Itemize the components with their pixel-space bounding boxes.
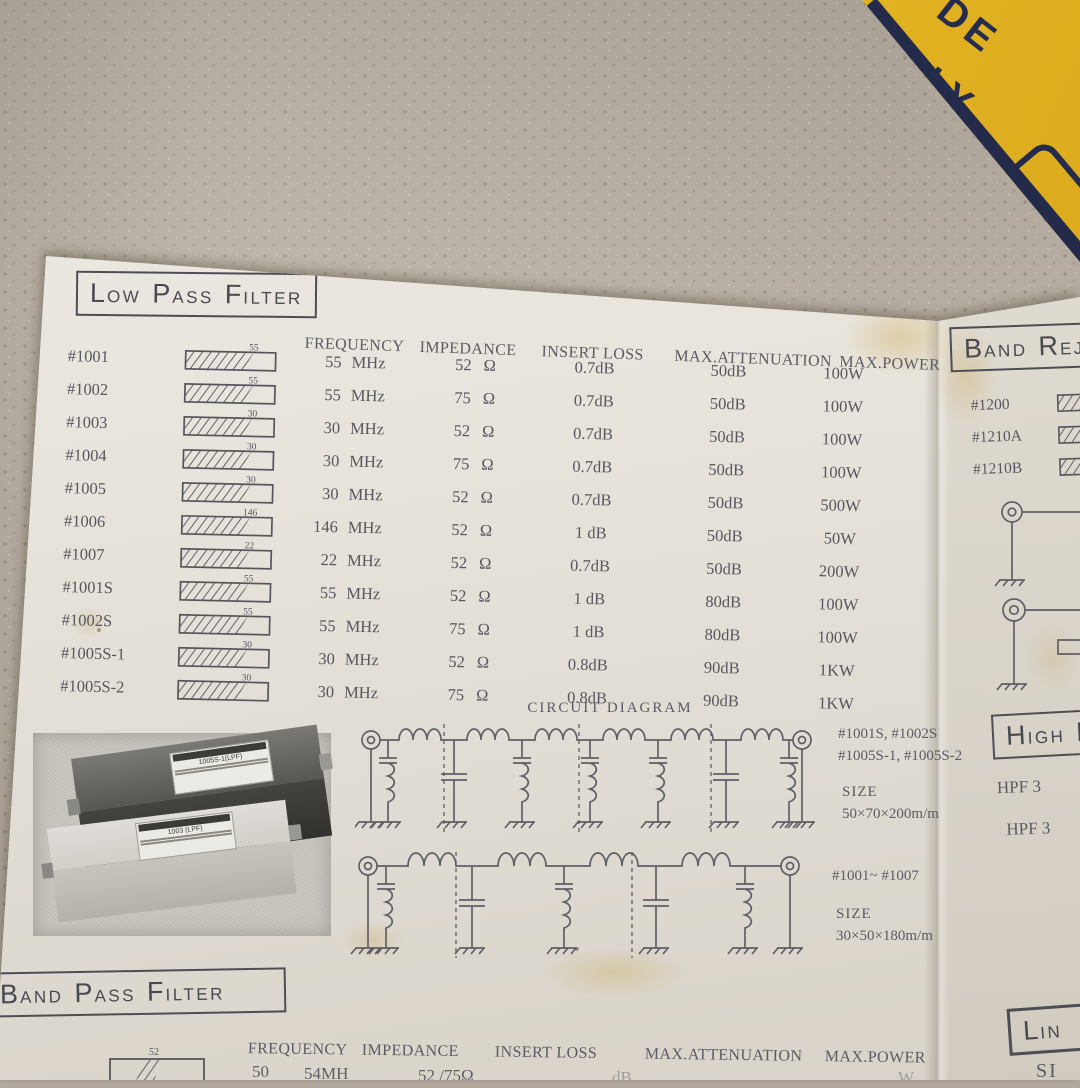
model-number: #1005 — [64, 478, 106, 499]
title-word: LIN — [1022, 1013, 1063, 1047]
band-pass-power-fragment: W — [898, 1068, 914, 1088]
frequency-unit: MHz — [351, 353, 385, 374]
column-header: MAX.ATTENUATION — [645, 1046, 803, 1066]
band-reject-filter-title: BANDREJE — [949, 321, 1080, 373]
insert-loss: 0.7dB — [545, 357, 643, 379]
impedance-unit: Ω — [483, 356, 496, 376]
max-attenuation: 50dB — [682, 492, 768, 514]
title-word: P — [1075, 716, 1080, 748]
frequency-unit: MHz — [345, 650, 379, 671]
circuit-top-models-2: #1005S-1, #1005S-2 — [838, 748, 962, 765]
impedance-unit: Ω — [482, 422, 495, 442]
max-power: 100W — [797, 462, 885, 484]
title-word: REJE — [1038, 329, 1080, 362]
column-header: MAX.POWER — [825, 1048, 926, 1067]
impedance-value: 52 — [430, 486, 468, 507]
column-header: FREQUENCY — [248, 1040, 348, 1059]
frequency-value: 55 — [291, 351, 341, 372]
model-number: #1003 — [66, 412, 108, 433]
frequency-value: 55 — [291, 384, 341, 405]
max-attenuation: 50dB — [684, 426, 770, 448]
band-reject-item: #1200 — [970, 386, 1080, 422]
max-attenuation: 50dB — [685, 360, 771, 382]
catalog-page: LOWPASSFILTER FREQUENCYIMPEDANCEINSERT L… — [0, 0, 1080, 1080]
max-power: 100W — [794, 594, 882, 616]
max-attenuation: 50dB — [681, 558, 767, 580]
band-pass-response-symbol: 52 — [108, 1046, 208, 1082]
band-pass-impedance: 52 /75Ω — [418, 1066, 474, 1086]
circuit-top-size-label: SIZE — [842, 784, 878, 801]
lpf-response-symbol: 30 — [180, 473, 275, 505]
frequency-unit: MHz — [351, 386, 385, 407]
frequency-unit: MHz — [349, 452, 383, 473]
circuit-top-size: 50×70×200m/m — [842, 806, 939, 823]
model-number: #1200 — [971, 394, 1058, 415]
max-attenuation: 50dB — [683, 459, 769, 481]
lpf-response-symbol: 55 — [177, 605, 272, 637]
insert-loss: 0.7dB — [545, 390, 643, 412]
band-pass-loss-fragment: dB — [612, 1068, 632, 1088]
title-word: PASS — [74, 977, 136, 1009]
model-number: #1001 — [67, 346, 109, 367]
frequency-unit: MHz — [347, 551, 381, 572]
insert-loss: 0.8dB — [539, 654, 637, 676]
high-pass-filter-title: HIGHP — [991, 705, 1080, 759]
impedance-value: 75 — [427, 618, 465, 639]
photo-connector — [67, 798, 81, 816]
title-word: FILTER — [225, 279, 303, 311]
insert-loss: 1 dB — [539, 621, 637, 643]
impedance-unit: Ω — [479, 554, 492, 574]
model-number: #1002S — [61, 610, 112, 631]
lpf-response-symbol: 22 — [179, 539, 274, 571]
lpf-response-symbol: 30 — [182, 407, 277, 439]
high-pass-model-fragment: HPF 3 — [997, 777, 1042, 799]
photo-connector — [319, 753, 333, 771]
lpf-table: #10015555MHz52Ω0.7dB50dB100W#10025555MHz… — [51, 342, 929, 742]
insert-loss: 0.7dB — [543, 456, 641, 478]
product-photo: 1005S-1(LPF) 1003 (LPF) — [33, 733, 331, 936]
high-pass-model-fragment: HPF 3 — [1006, 818, 1051, 840]
frequency-value: 22 — [287, 549, 337, 570]
frequency-unit: MHz — [346, 584, 380, 605]
frequency-unit: MHz — [345, 617, 379, 638]
max-attenuation: 90dB — [679, 657, 765, 679]
impedance-value: 75 — [426, 684, 464, 705]
max-attenuation: 80dB — [679, 624, 765, 646]
title-word: PASS — [152, 279, 214, 311]
lpf-response-symbol: 55 — [183, 374, 278, 406]
band-reject-items: #1200#1210A#1210B — [970, 386, 1080, 486]
impedance-value: 52 — [430, 519, 468, 540]
circuit-top-models-1: #1001S, #1002S — [838, 726, 937, 743]
model-number: #1002 — [67, 379, 109, 400]
max-power: 100W — [799, 363, 887, 385]
model-number: #1005S-2 — [60, 676, 125, 697]
impedance-unit: Ω — [480, 521, 493, 541]
band-reject-symbol — [1058, 424, 1080, 445]
impedance-value: 52 — [432, 420, 470, 441]
impedance-unit: Ω — [477, 653, 490, 673]
band-reject-circuit-fragment — [986, 586, 1080, 704]
insert-loss: 0.7dB — [541, 555, 639, 577]
impedance-unit: Ω — [476, 686, 489, 706]
frequency-value: 55 — [285, 615, 335, 636]
lpf-response-symbol: 30 — [181, 440, 276, 472]
high-pass-items: HPF 3HPF 3 — [997, 774, 1080, 858]
circuit-bottom-size-label: SIZE — [836, 906, 872, 923]
impedance-value: 52 — [427, 651, 465, 672]
insert-loss: 0.7dB — [544, 423, 642, 445]
frequency-unit: MHz — [344, 683, 378, 704]
band-reject-circuit-fragment — [986, 492, 1080, 598]
lpf-response-symbol: 146 — [180, 506, 275, 538]
band-reject-symbol — [1057, 392, 1080, 413]
photo-connector — [288, 824, 302, 840]
paper-speck — [838, 306, 842, 310]
band-reject-item: #1210B — [973, 450, 1080, 486]
lpf-response-symbol: 30 — [177, 638, 272, 670]
circuit-bottom-size: 30×50×180m/m — [836, 928, 933, 945]
impedance-value: 52 — [429, 552, 467, 573]
max-attenuation: 50dB — [685, 393, 771, 415]
frequency-value: 30 — [290, 417, 340, 438]
band-pass-table-headers: FREQUENCYIMPEDANCEINSERT LOSSMAX.ATTENUA… — [240, 1040, 980, 1074]
frequency-value: 30 — [289, 450, 339, 471]
lpf-response-symbol: 55 — [183, 341, 278, 373]
max-power: 100W — [793, 627, 881, 649]
low-pass-filter-title: LOWPASSFILTER — [76, 271, 317, 319]
circuit-bottom-models: #1001~ #1007 — [832, 868, 919, 885]
max-power: 200W — [795, 561, 883, 583]
lpf-response-symbol: 55 — [178, 572, 273, 604]
model-number: #1006 — [64, 511, 106, 532]
insert-loss: 1 dB — [540, 588, 638, 610]
impedance-unit: Ω — [480, 488, 493, 508]
frequency-unit: MHz — [350, 419, 384, 440]
catalog-page-wrap: LOWPASSFILTER FREQUENCYIMPEDANCEINSERT L… — [0, 0, 1080, 1080]
frequency-value: 30 — [284, 681, 334, 702]
frequency-unit: MHz — [348, 518, 382, 539]
title-word: FILTER — [147, 975, 225, 1007]
max-power: 1KW — [793, 660, 881, 682]
lpf-response-symbol: 30 — [176, 671, 271, 703]
model-number: #1005S-1 — [61, 643, 126, 664]
insert-loss: 1 dB — [542, 522, 640, 544]
band-reject-item: #1210A — [971, 418, 1080, 454]
model-number: #1210A — [972, 426, 1059, 447]
impedance-unit: Ω — [481, 455, 494, 475]
impedance-value: 75 — [433, 387, 471, 408]
band-reject-symbol — [1059, 456, 1080, 477]
model-number: #1001S — [62, 577, 113, 598]
max-attenuation: 50dB — [682, 525, 768, 547]
circuit-diagram-bottom-svg — [350, 840, 815, 968]
column-header: IMPEDANCE — [362, 1042, 459, 1061]
title-word: LOW — [90, 278, 142, 310]
title-word: BAND — [0, 978, 64, 1010]
model-number: #1210B — [973, 458, 1060, 479]
max-attenuation: 80dB — [680, 591, 766, 613]
band-pass-frequency-low: 50 — [252, 1062, 269, 1082]
circuit-diagram-top-svg — [355, 712, 820, 847]
frequency-value: 30 — [288, 483, 338, 504]
frequency-unit: MHz — [348, 485, 382, 506]
impedance-value: 75 — [431, 453, 469, 474]
max-power: 100W — [798, 429, 886, 451]
impedance-value: 52 — [433, 354, 471, 375]
line-filter-title: LIN — [1007, 999, 1080, 1056]
frequency-value: 55 — [286, 582, 336, 603]
svg-text:52: 52 — [149, 1047, 159, 1058]
frequency-value: 146 — [288, 516, 338, 537]
impedance-value: 52 — [428, 585, 466, 606]
band-pass-frequency-high: 54MH — [304, 1064, 348, 1084]
max-power: 50W — [796, 528, 884, 550]
impedance-unit: Ω — [478, 587, 491, 607]
frequency-value: 30 — [285, 648, 335, 669]
photo-connector — [41, 863, 54, 879]
model-number: #1004 — [65, 445, 107, 466]
model-number: #1007 — [63, 544, 105, 565]
title-word: HIGH — [1005, 718, 1066, 752]
title-word: BAND — [964, 332, 1028, 365]
max-power: 100W — [799, 396, 887, 418]
impedance-unit: Ω — [483, 389, 496, 409]
band-pass-filter-title: BANDPASSFILTER — [0, 967, 286, 1017]
column-header: INSERT LOSS — [495, 1044, 598, 1063]
impedance-unit: Ω — [477, 620, 490, 640]
insert-loss: 0.7dB — [542, 489, 640, 511]
max-power: 500W — [796, 495, 884, 517]
